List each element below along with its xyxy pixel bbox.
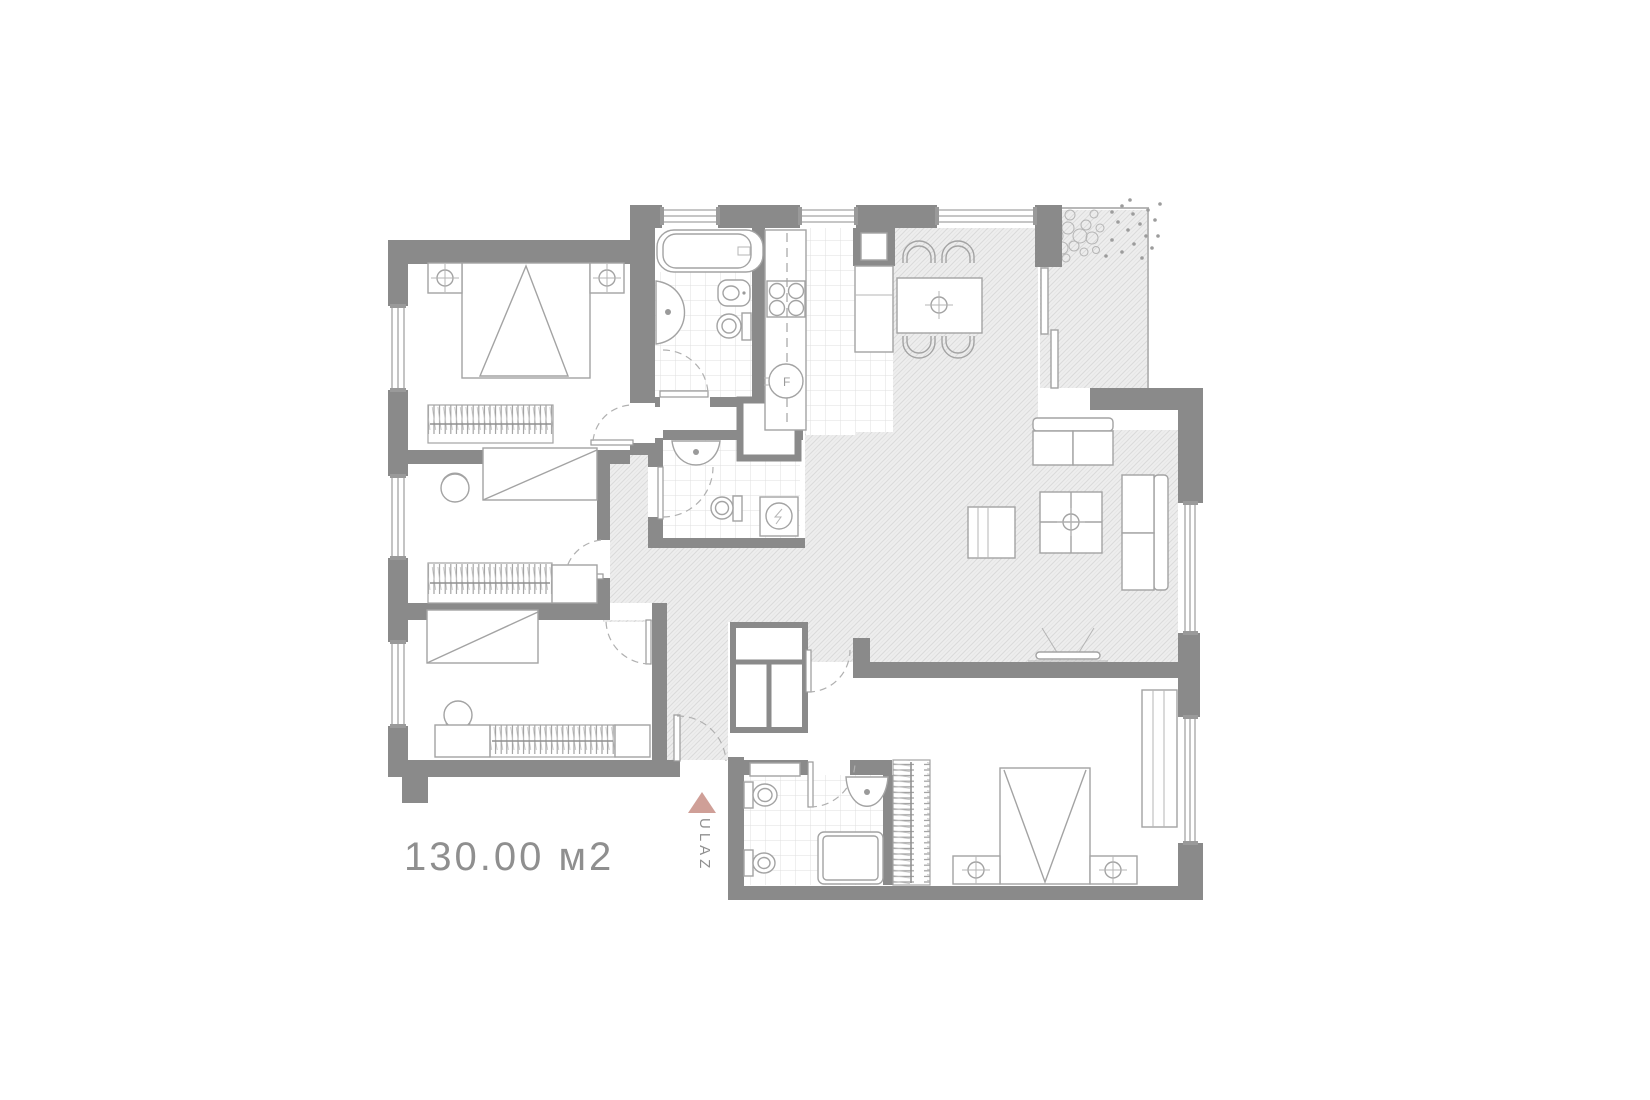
wall-segment — [648, 517, 663, 540]
wardrobe — [428, 405, 553, 443]
wardrobe — [428, 563, 597, 603]
wall-segment — [853, 638, 870, 678]
kitchen-counter — [765, 230, 806, 430]
master-bedroom — [893, 690, 1177, 885]
toilet — [744, 782, 777, 808]
wall-segment — [856, 205, 937, 228]
wall-segment — [655, 397, 660, 407]
loveseat — [1122, 475, 1168, 590]
floor-plan-canvas: F — [0, 0, 1650, 1100]
wall-segment — [388, 390, 408, 476]
wall-segment — [652, 603, 667, 620]
entrance-arrow-icon — [688, 792, 716, 813]
wall-niche — [861, 233, 887, 260]
shower — [818, 832, 883, 884]
sink-mark: F — [783, 375, 790, 389]
window — [935, 205, 1037, 228]
wall-segment — [648, 538, 805, 548]
bathtub — [657, 230, 763, 272]
wall-segment — [1035, 205, 1062, 267]
chair — [441, 473, 469, 502]
window — [388, 474, 408, 560]
floor-plan: F — [0, 0, 1650, 1100]
wall-segment — [850, 760, 892, 775]
bidet — [718, 280, 750, 306]
window — [388, 640, 408, 728]
wall-segment — [718, 205, 800, 228]
bedroom-1 — [428, 263, 624, 443]
wall-segment — [597, 578, 610, 603]
wall-segment — [855, 662, 1178, 678]
window — [1181, 501, 1200, 635]
wall-segment — [1178, 410, 1203, 503]
window — [388, 304, 408, 392]
wall-segment — [388, 240, 640, 264]
bathroom-shelf — [750, 763, 800, 776]
kitchen-floor — [806, 228, 856, 435]
double-bed — [462, 263, 590, 378]
bedroom-3 — [427, 610, 650, 757]
tv-cabinet — [968, 507, 1015, 558]
wall-segment — [728, 757, 744, 900]
wall-segment — [728, 886, 1203, 900]
double-bed — [1000, 768, 1090, 884]
window — [660, 205, 720, 228]
wall-segment — [597, 464, 610, 540]
wardrobe — [435, 725, 650, 757]
bedroom-2 — [428, 448, 597, 603]
sliding-door-panel — [1051, 330, 1058, 388]
coffee-table — [1040, 492, 1102, 553]
window — [798, 205, 858, 228]
wall-segment — [652, 620, 667, 760]
fridge-cabinet — [855, 266, 893, 352]
entrance-label: ULAZ — [696, 818, 713, 872]
tall-wardrobe — [1142, 690, 1177, 827]
entry-closet — [733, 625, 805, 730]
kitchen-floor-ext — [853, 352, 893, 432]
wall-segment — [388, 558, 408, 642]
wall-segment — [388, 760, 680, 777]
sofa — [1033, 418, 1113, 465]
bedroom-1-door — [591, 403, 655, 445]
area-label: 130.00 м2 — [404, 835, 614, 879]
hanger-wardrobe — [893, 760, 930, 885]
toilet — [717, 313, 751, 340]
window — [1181, 715, 1200, 845]
wall-segment — [630, 205, 655, 403]
labels: ULAZ 130.00 м2 — [404, 792, 716, 879]
wall-segment — [1178, 633, 1200, 717]
sliding-door-panel — [1041, 268, 1048, 334]
bedroom-3-door — [606, 603, 652, 664]
washing-machine — [760, 497, 798, 536]
toilet — [711, 496, 742, 521]
wall-segment — [1090, 388, 1203, 410]
